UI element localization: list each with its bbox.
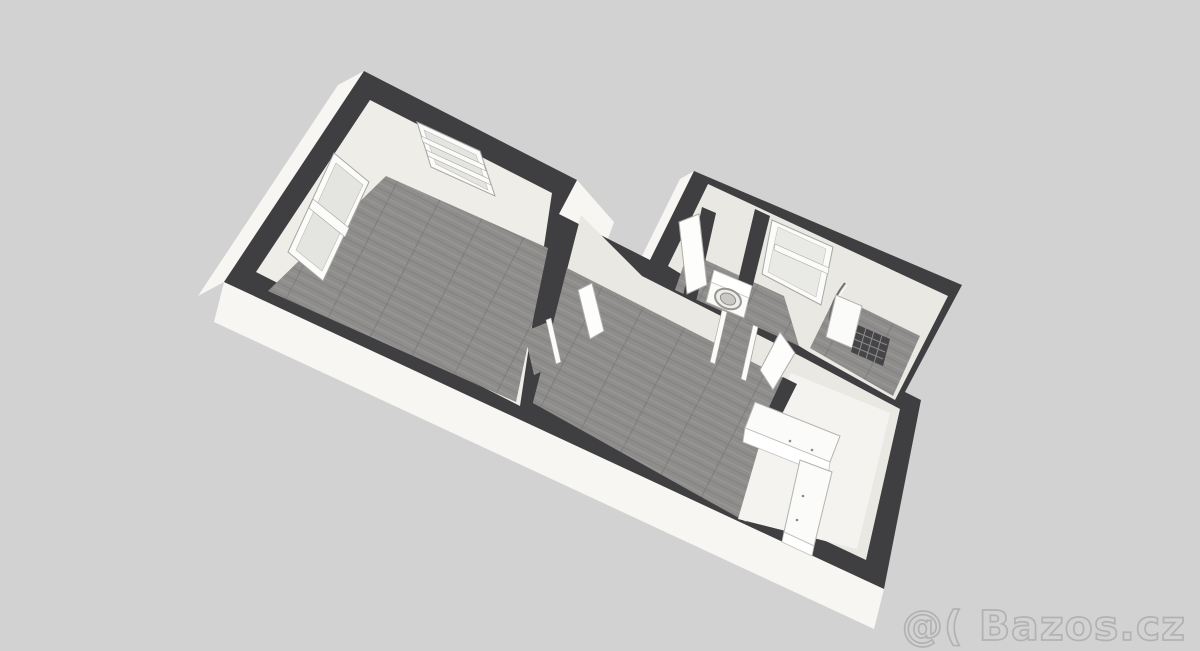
floorplan-render: @( Bazos.cz [0, 0, 1200, 651]
bazos-watermark: @( Bazos.cz [902, 602, 1186, 650]
floorplan-screenshot: @( Bazos.cz [0, 0, 1200, 651]
